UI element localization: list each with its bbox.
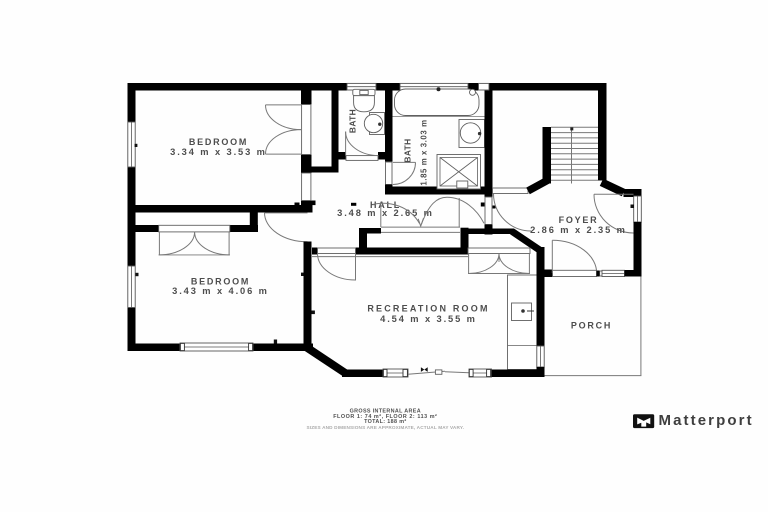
svg-text:SIZES AND DIMENSIONS ARE APPRO: SIZES AND DIMENSIONS ARE APPROXIMATE, AC… [307, 425, 465, 430]
svg-text:PORCH: PORCH [571, 321, 612, 331]
svg-text:BATH: BATH [403, 138, 413, 162]
svg-text:TOTAL: 188 m²: TOTAL: 188 m² [364, 419, 406, 425]
svg-text:3.48 m x 2.65 m: 3.48 m x 2.65 m [337, 208, 434, 218]
svg-text:3.34 m x 3.53 m: 3.34 m x 3.53 m [170, 147, 267, 157]
svg-text:BEDROOM: BEDROOM [191, 276, 250, 286]
svg-text:1.85 m x 3.03 m: 1.85 m x 3.03 m [420, 119, 429, 185]
svg-text:Matterport: Matterport [659, 412, 754, 429]
svg-text:BEDROOM: BEDROOM [189, 137, 248, 147]
svg-text:BATH: BATH [347, 109, 357, 133]
svg-text:RECREATION ROOM: RECREATION ROOM [367, 303, 489, 313]
svg-text:4.54 m x 3.55 m: 4.54 m x 3.55 m [380, 314, 477, 324]
svg-text:2.86 m x 2.35 m: 2.86 m x 2.35 m [530, 225, 627, 235]
svg-text:3.43 m x 4.06 m: 3.43 m x 4.06 m [172, 286, 269, 296]
svg-text:FOYER: FOYER [559, 215, 599, 225]
